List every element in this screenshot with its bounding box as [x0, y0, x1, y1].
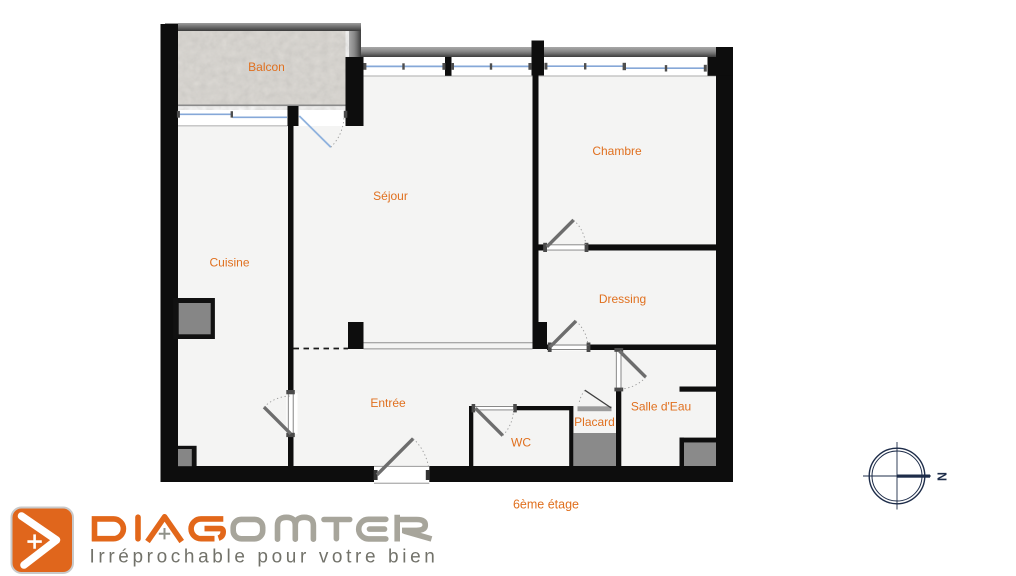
svg-text:Chambre: Chambre [592, 144, 642, 158]
svg-text:6ème étage: 6ème étage [513, 498, 579, 512]
svg-text:N: N [935, 472, 949, 481]
svg-text:Séjour: Séjour [373, 189, 408, 203]
svg-text:Entrée: Entrée [370, 396, 406, 410]
svg-text:Salle d'Eau: Salle d'Eau [631, 400, 691, 414]
svg-text:WC: WC [511, 435, 531, 449]
svg-text:Cuisine: Cuisine [209, 255, 249, 269]
svg-text:Placard: Placard [574, 415, 615, 429]
svg-text:Balcon: Balcon [248, 60, 285, 74]
svg-text:Irréprochable pour votre bien: Irréprochable pour votre bien [90, 547, 439, 568]
svg-text:Dressing: Dressing [599, 292, 646, 306]
